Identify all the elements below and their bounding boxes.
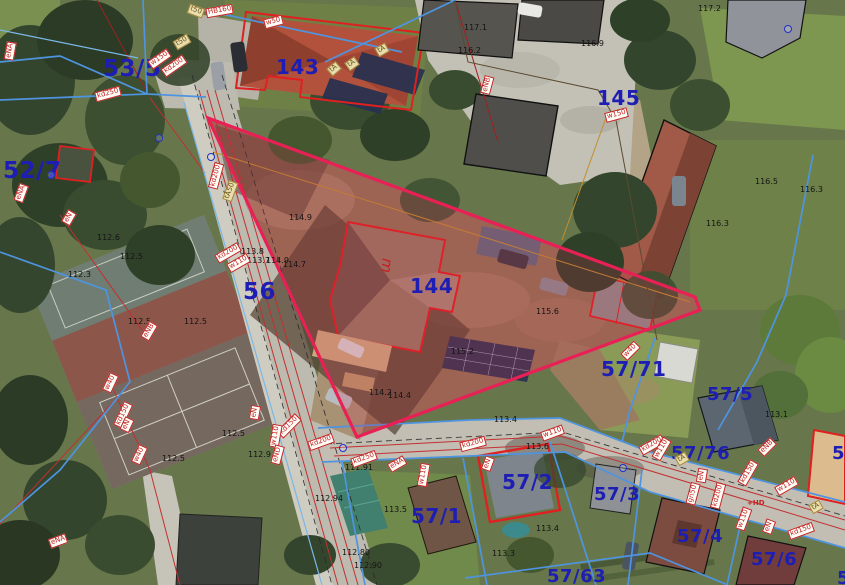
map-imagery	[0, 0, 845, 585]
aerial-map[interactable]: 53/552/75614314414557/7157/557/7657/157/…	[0, 0, 845, 585]
